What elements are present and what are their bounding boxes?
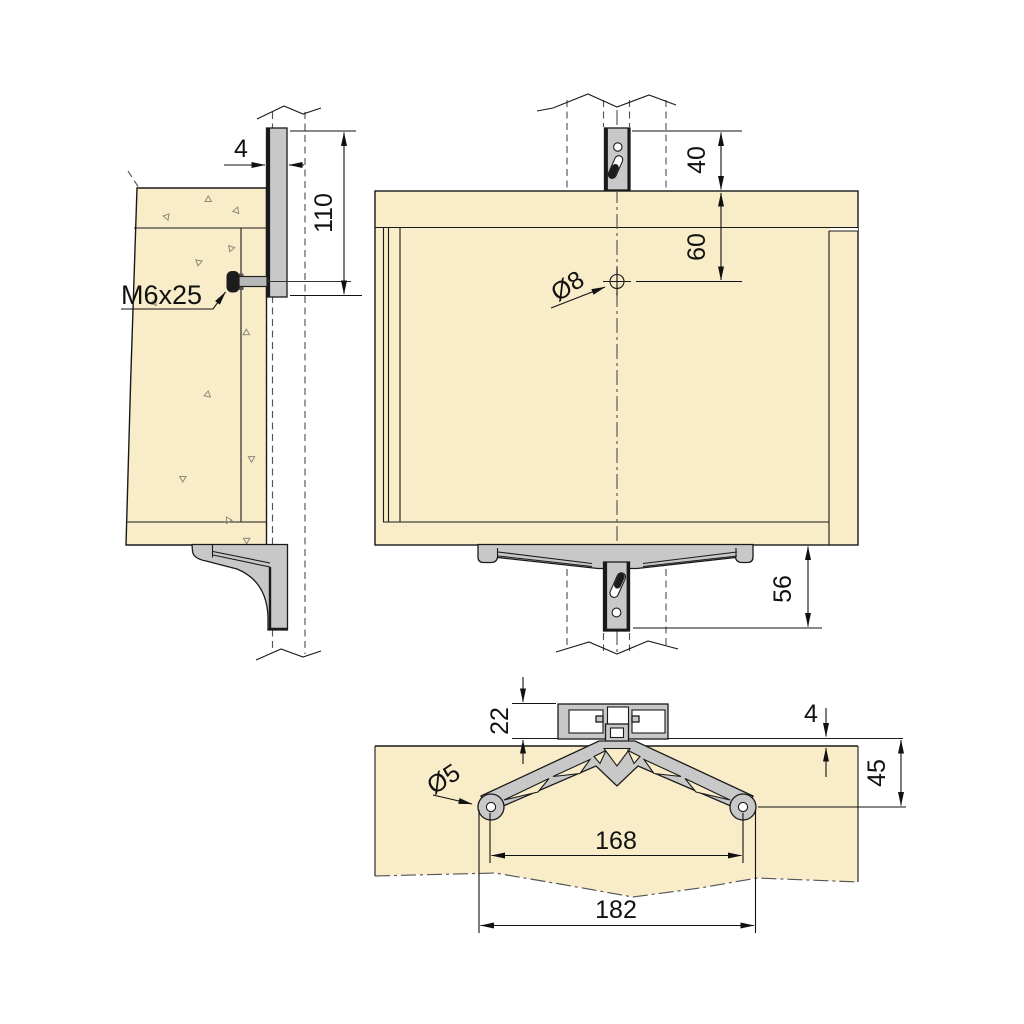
break-line: [257, 106, 321, 119]
dimension-plate-thickness: 4: [224, 135, 304, 165]
bracket-hole-left: [486, 802, 495, 811]
plate-hole: [612, 608, 621, 617]
dim-plate-height-label: 110: [310, 193, 338, 233]
dim-overall-width-label: 182: [595, 896, 637, 924]
aluminum-profile: [558, 704, 668, 742]
top-mounting-plate: [605, 128, 631, 190]
dim-bracket-drop-label: 56: [769, 575, 797, 603]
screw-shaft: [239, 277, 267, 287]
dimension-plate-height: 110: [290, 131, 362, 296]
dim-hole-down-label: 60: [683, 233, 711, 261]
dim-top-gap-label: 40: [683, 146, 711, 174]
side-view: 4 110 M6x25: [121, 106, 362, 660]
bottom-mounting-plate: [604, 562, 630, 631]
hidden-line: [128, 171, 139, 188]
dim-plate-thickness-label: 4: [234, 135, 248, 163]
dim-hole-spacing-label: 168: [595, 827, 637, 855]
dim-hole-depth-label: 45: [863, 759, 891, 787]
bracket-hole-right: [738, 802, 747, 811]
dimension-top-gap: 40: [632, 131, 742, 190]
dim-profile-height-label: 22: [486, 707, 514, 735]
side-bracket: [192, 545, 288, 631]
break-line: [256, 649, 321, 660]
profile-channel: [608, 707, 629, 725]
dim-proud-label: 4: [804, 700, 818, 728]
plate-hole: [614, 143, 622, 151]
technical-drawing-page: 4 110 M6x25: [0, 0, 1024, 1024]
shelf-panel-side: [126, 188, 267, 545]
drawing-canvas: 4 110 M6x25: [0, 0, 1024, 1024]
front-view: 40 60 Ø8 56: [375, 94, 858, 654]
edge-gap: [830, 228, 858, 230]
screw-head: [227, 271, 240, 293]
section-view: 22 4 45 Ø5 168 182: [375, 677, 906, 933]
screw-callout-label: M6x25: [121, 280, 202, 310]
break-line: [537, 94, 676, 111]
